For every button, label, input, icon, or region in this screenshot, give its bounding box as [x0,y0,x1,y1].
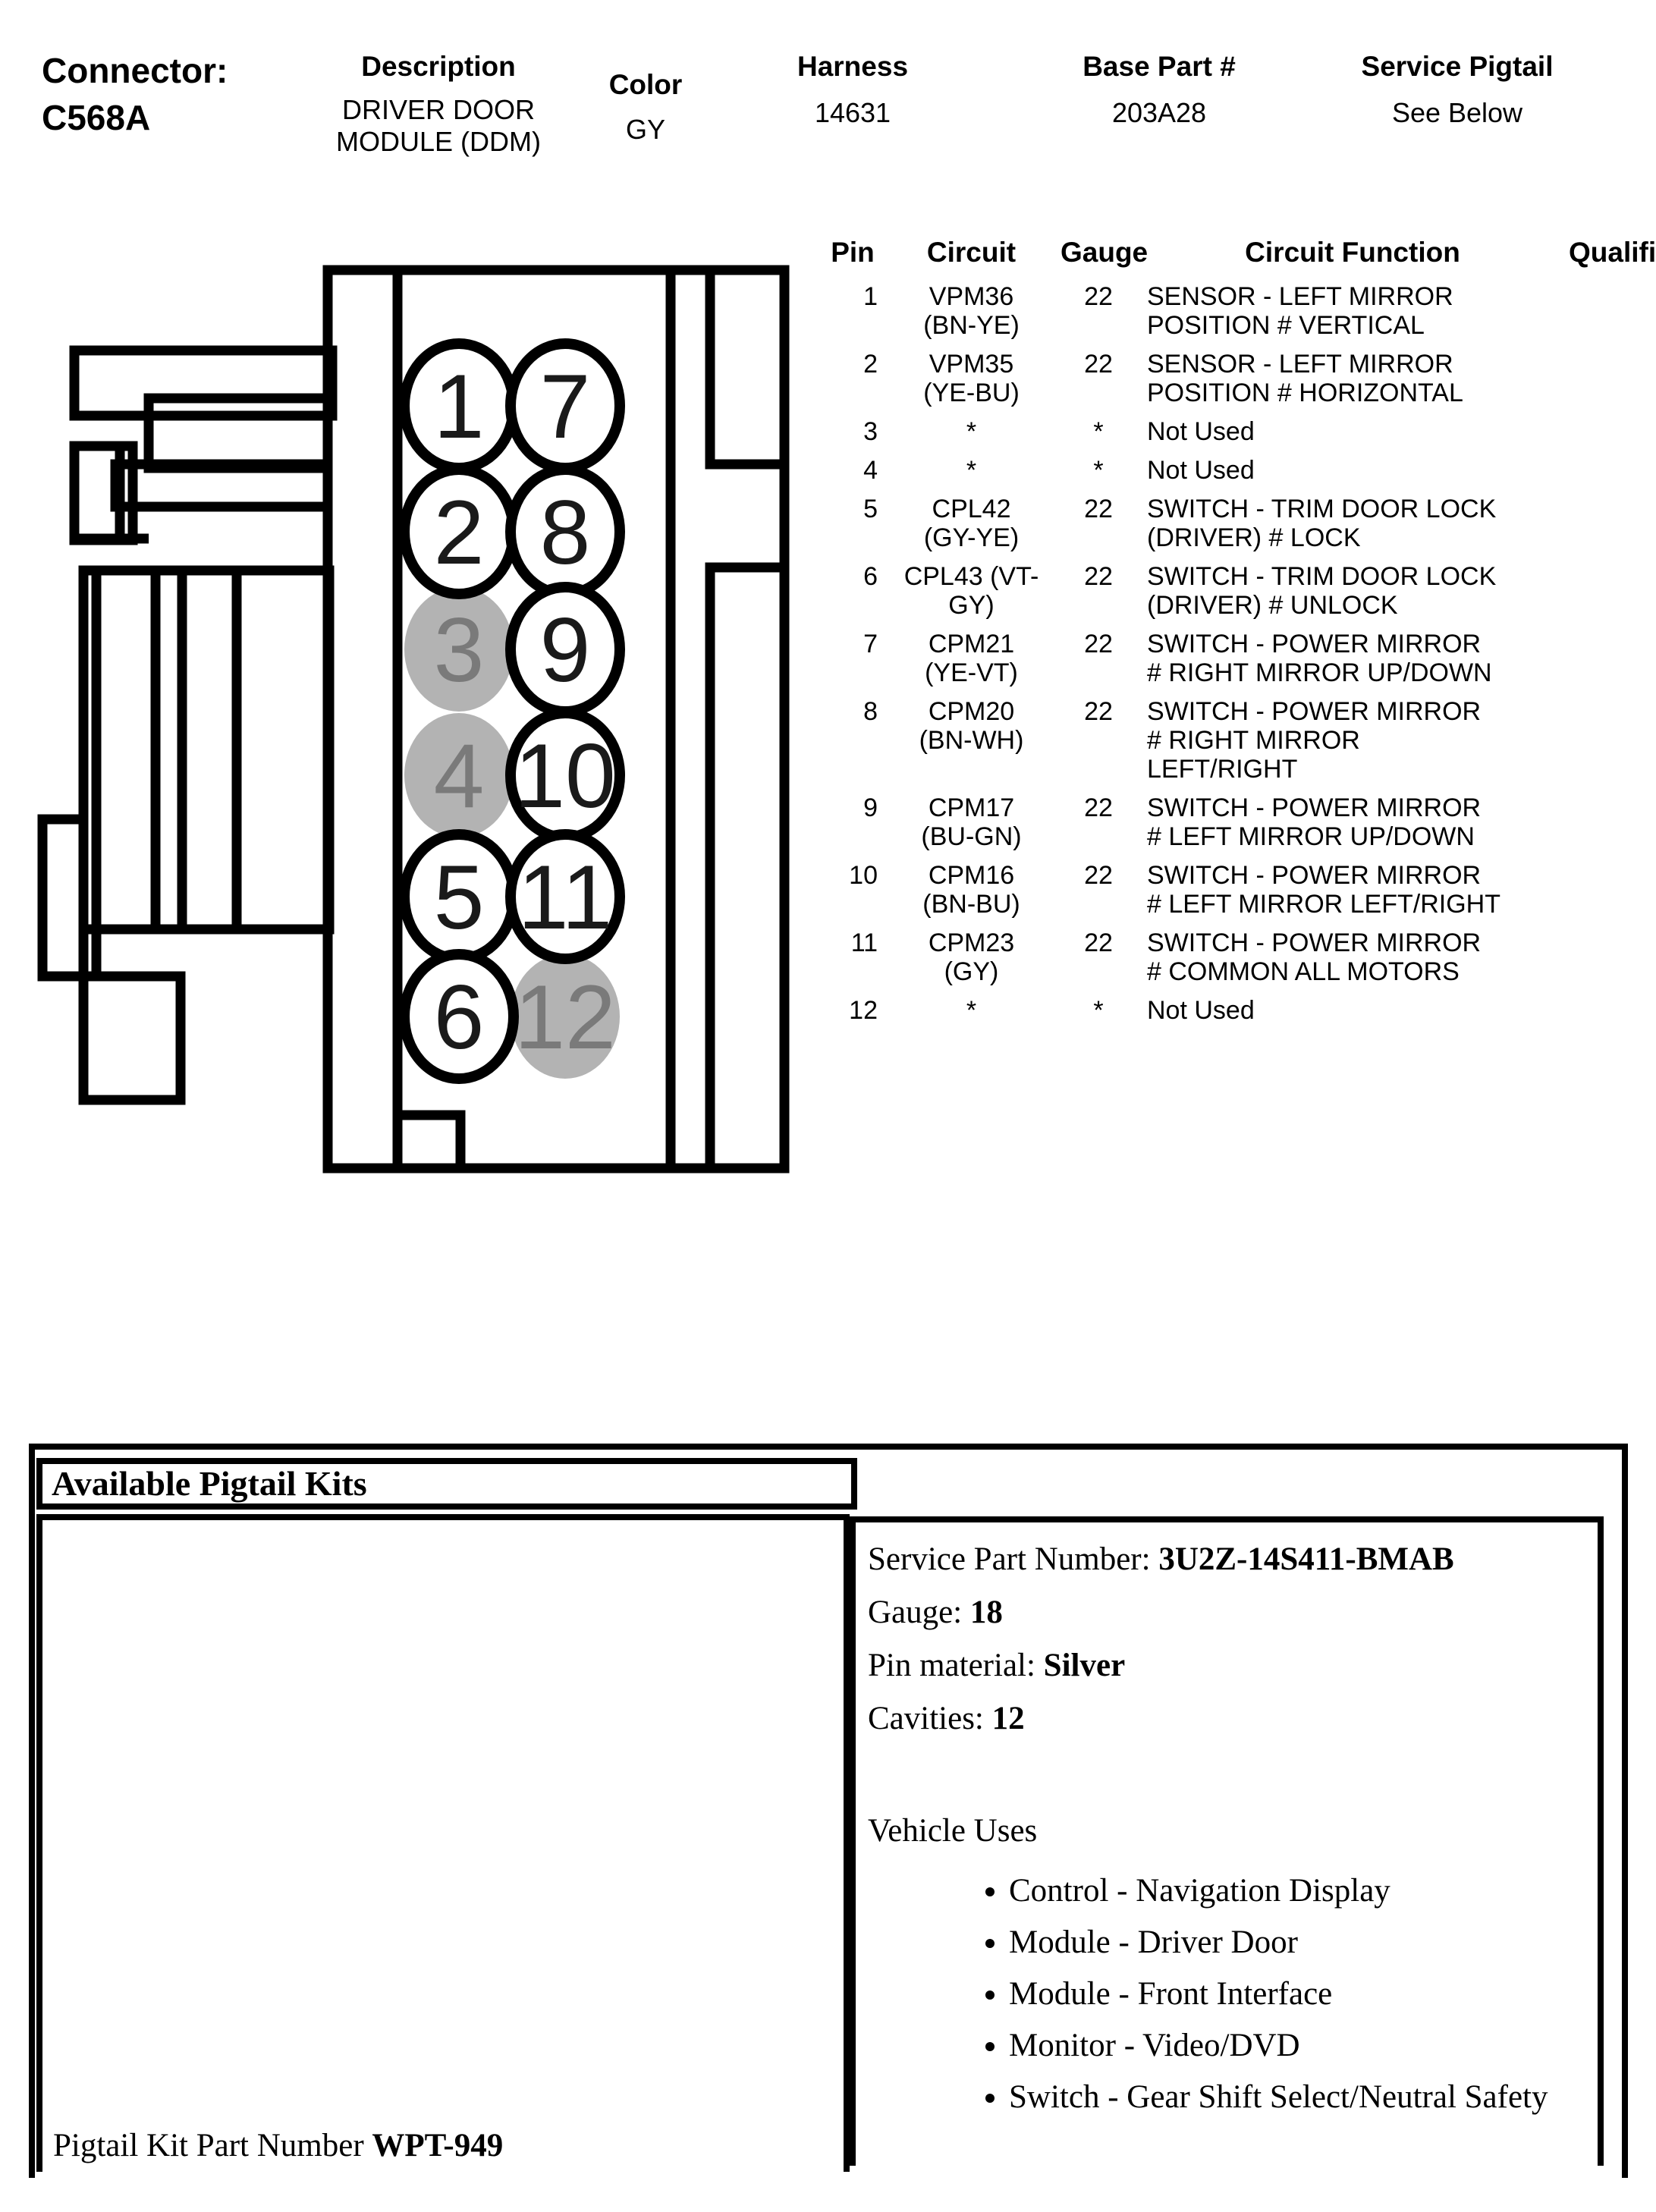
header-col-label: Base Part # [1000,50,1318,83]
kit-part-number-value: WPT-949 [372,2128,503,2163]
body-bottom-step [398,1115,460,1168]
vehicle-use-item: Module - Driver Door [1009,1925,1598,1961]
pigtail-kit-part-number-line: Pigtail Kit Part Number WPT-949 [53,2127,503,2164]
header-col-base-part: Base Part # 203A28 [1000,50,1318,129]
header-col-value: See Below [1298,97,1617,129]
service-line: Gauge: 18 [868,1586,1598,1639]
pin-number: 2 [434,482,485,583]
service-line: Pin material: Silver [868,1639,1598,1692]
pin-number: 12 [514,966,615,1068]
housing-ribbed-box [83,570,329,929]
pigtail-kits-title: Available Pigtail Kits [52,1464,367,1503]
connector-title: Connector: C568A [42,47,228,141]
pin-table-rows: 1VPM36(BN-YE)22SENSOR - LEFT MIRRORPOSIT… [823,282,1642,1025]
header-col-label: Service Pigtail [1298,50,1617,83]
table-row: 4**Not Used [823,456,1642,485]
housing-bar [149,398,328,468]
service-line: Cavities: 12 [868,1692,1598,1745]
pin-number: 3 [434,599,485,701]
pigtail-kits-title-box: Available Pigtail Kits [36,1458,857,1510]
table-row: 10CPM16(BN-BU)22SWITCH - POWER MIRROR# L… [823,861,1642,919]
body-notch-top [710,270,784,464]
pin-number: 1 [434,356,485,457]
pin-table: Pin Circuit Gauge Circuit Function Quali… [823,237,1642,1035]
pin-number: 11 [518,847,613,948]
table-row: 7CPM21(YE-VT)22SWITCH - POWER MIRROR# RI… [823,630,1642,687]
table-row: 9CPM17(BU-GN)22SWITCH - POWER MIRROR# LE… [823,793,1642,851]
pin-number: 10 [514,725,615,827]
table-row: 12**Not Used [823,996,1642,1025]
col-header-pin: Pin [823,237,882,269]
connector-label: Connector: [42,47,228,94]
connector-spec-page: Connector: C568A Description DRIVER DOOR… [0,0,1656,2212]
table-row: 8CPM20(BN-WH)22SWITCH - POWER MIRROR# RI… [823,697,1642,784]
table-row: 2VPM35(YE-BU)22SENSOR - LEFT MIRRORPOSIT… [823,350,1642,407]
pin-table-header-row: Pin Circuit Gauge Circuit Function Quali… [823,237,1642,269]
table-row: 1VPM36(BN-YE)22SENSOR - LEFT MIRRORPOSIT… [823,282,1642,340]
col-header-circuit: Circuit [882,237,1061,269]
pin-group: 341212567891011 [404,344,620,1079]
col-header-gauge: Gauge [1061,237,1136,269]
body-notch-bottom [710,567,784,1168]
pin-number: 7 [540,356,591,457]
service-line: Service Part Number: 3U2Z-14S411-BMAB [868,1533,1598,1586]
table-row: 3**Not Used [823,417,1642,446]
header-col-harness: Harness 14631 [693,50,1012,129]
header-col-label: Harness [693,50,1012,83]
pin-number: 4 [434,725,485,827]
table-row: 5CPL42(GY-YE)22SWITCH - TRIM DOOR LOCK(D… [823,495,1642,552]
connector-id: C568A [42,94,228,141]
header-col-service-pigtail: Service Pigtail See Below [1298,50,1617,129]
housing-bottom-piece [83,976,181,1100]
connector-diagram: 341212567891011 [30,258,797,1191]
pin-number: 6 [434,966,485,1068]
vehicle-uses-list: Control - Navigation DisplayModule - Dri… [868,1873,1598,2116]
col-header-qualifier: Qualifier [1569,237,1637,269]
vehicle-use-item: Module - Front Interface [1009,1976,1598,2012]
col-header-function: Circuit Function [1136,237,1569,269]
pin-number: 5 [434,847,485,948]
housing-tab [42,819,83,976]
pin-number: 8 [540,482,591,583]
header-col-value: 203A28 [1000,97,1318,129]
pigtail-kits-panel: Pigtail Kit Part Number WPT-949 [36,1514,850,2172]
table-row: 11CPM23(GY)22SWITCH - POWER MIRROR# COMM… [823,928,1642,986]
vehicle-use-item: Monitor - Video/DVD [1009,2028,1598,2064]
service-part-panel: Service Part Number: 3U2Z-14S411-BMABGau… [850,1516,1604,2166]
pin-number: 9 [540,599,591,701]
header-col-value: 14631 [693,97,1012,129]
kit-part-number-label: Pigtail Kit Part Number [53,2128,372,2163]
vehicle-uses-title: Vehicle Uses [868,1805,1598,1858]
housing-bar [74,350,332,416]
vehicle-use-item: Control - Navigation Display [1009,1873,1598,1909]
vehicle-use-item: Switch - Gear Shift Select/Neutral Safet… [1009,2079,1598,2116]
service-lines: Service Part Number: 3U2Z-14S411-BMABGau… [868,1533,1598,1745]
table-row: 6CPL43 (VT-GY)22SWITCH - TRIM DOOR LOCK(… [823,562,1642,620]
